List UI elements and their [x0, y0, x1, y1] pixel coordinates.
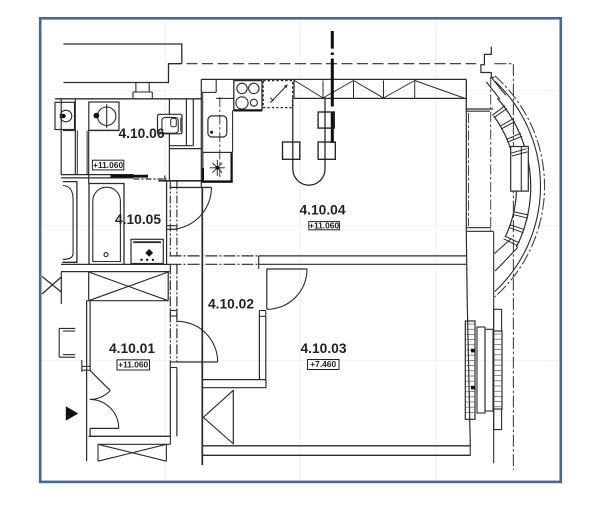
svg-text:4.10.03: 4.10.03 — [300, 341, 346, 356]
svg-text:4.10.04: 4.10.04 — [299, 202, 345, 217]
svg-text:4.10.05: 4.10.05 — [115, 212, 161, 227]
svg-text:+11.060: +11.060 — [118, 360, 148, 370]
svg-text:+11.060: +11.060 — [309, 220, 339, 230]
svg-text:4.10.06: 4.10.06 — [118, 126, 164, 141]
svg-text:4.10.02: 4.10.02 — [208, 296, 254, 311]
svg-text:+7.460: +7.460 — [310, 359, 336, 369]
svg-text:4.10.01: 4.10.01 — [109, 341, 155, 356]
svg-text:+11.060: +11.060 — [93, 160, 123, 170]
